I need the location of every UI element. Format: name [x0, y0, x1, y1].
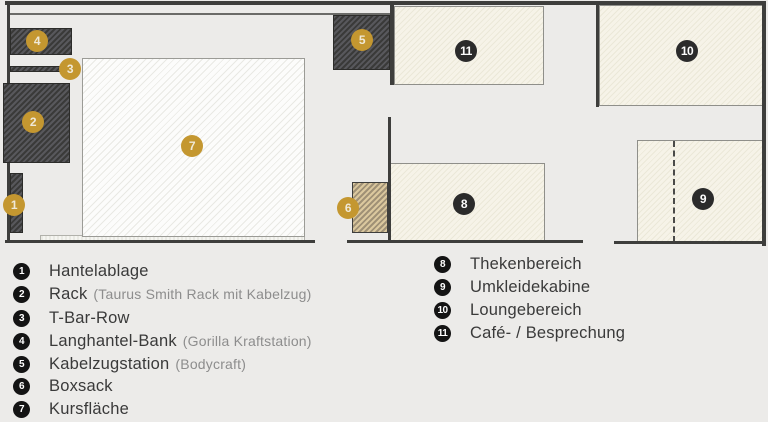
legend-label: Kursfläche	[49, 400, 129, 419]
legend-item-kabelzugstation: 5 Kabelzugstation (Bodycraft)	[13, 354, 246, 374]
legend-num-4: 4	[13, 333, 30, 350]
umkleide-divider-line	[673, 141, 675, 242]
legend-num-3: 3	[13, 310, 30, 327]
marker-8: 8	[453, 193, 475, 215]
legend-label: Café- / Besprechung	[470, 324, 625, 343]
legend-item-loungebereich: 10 Loungebereich	[434, 300, 582, 320]
legend-item-thekenbereich: 8 Thekenbereich	[434, 254, 582, 274]
marker-7: 7	[181, 135, 203, 157]
legend-label: T-Bar-Row	[49, 309, 130, 328]
legend-label: Loungebereich	[470, 301, 582, 320]
legend-item-hantelablage: 1 Hantelablage	[13, 261, 155, 281]
legend-item-t-bar-row: 3 T-Bar-Row	[13, 308, 136, 328]
wall-mid-upper	[390, 4, 394, 85]
gym-floor-plan-page: { "plan": { "markers": [ {"num":"1","col…	[0, 0, 768, 422]
marker-3: 3	[59, 58, 81, 80]
wall-mid-lower	[388, 117, 391, 242]
legend-note: (Bodycraft)	[175, 356, 246, 372]
legend-item-boxsack: 6 Boxsack	[13, 376, 119, 396]
legend-label: Rack	[49, 285, 87, 304]
marker-9: 9	[692, 188, 714, 210]
legend-item-kursflaeche: 7 Kursfläche	[13, 399, 135, 419]
legend-item-umkleidekabine: 9 Umkleidekabine	[434, 277, 590, 297]
legend-note: (Gorilla Kraftstation)	[183, 333, 312, 349]
marker-6: 6	[337, 197, 359, 219]
wall-bottom-left	[5, 240, 315, 243]
legend-label: Boxsack	[49, 377, 113, 396]
equipment-t-bar-row	[10, 66, 62, 72]
wall-lounge-left	[596, 4, 599, 107]
legend-label: Thekenbereich	[470, 255, 582, 274]
marker-10: 10	[676, 40, 698, 62]
legend-label: Umkleidekabine	[470, 278, 590, 297]
legend-num-2: 2	[13, 286, 30, 303]
legend-item-langhantel-bank: 4 Langhantel-Bank (Gorilla Kraftstation)	[13, 331, 312, 351]
legend-num-10: 10	[434, 302, 451, 319]
legend-num-8: 8	[434, 256, 451, 273]
legend-num-9: 9	[434, 279, 451, 296]
legend-note: (Taurus Smith Rack mit Kabelzug)	[93, 286, 311, 302]
marker-11: 11	[455, 40, 477, 62]
wall-top	[5, 1, 766, 5]
legend-item-rack: 2 Rack (Taurus Smith Rack mit Kabelzug)	[13, 284, 311, 304]
marker-2: 2	[22, 111, 44, 133]
legend-num-5: 5	[13, 356, 30, 373]
legend-num-11: 11	[434, 325, 451, 342]
marker-4: 4	[26, 30, 48, 52]
wall-bottom-right	[614, 241, 766, 244]
marker-5: 5	[351, 29, 373, 51]
wall-right	[762, 1, 766, 246]
legend-label: Hantelablage	[49, 262, 149, 281]
legend-num-7: 7	[13, 401, 30, 418]
marker-1: 1	[3, 194, 25, 216]
wall-bottom-mid	[347, 240, 583, 243]
legend-label: Kabelzugstation	[49, 355, 169, 374]
legend-item-cafe-besprechung: 11 Café- / Besprechung	[434, 323, 625, 343]
legend-label: Langhantel-Bank	[49, 332, 177, 351]
legend-num-6: 6	[13, 378, 30, 395]
legend-num-1: 1	[13, 263, 30, 280]
